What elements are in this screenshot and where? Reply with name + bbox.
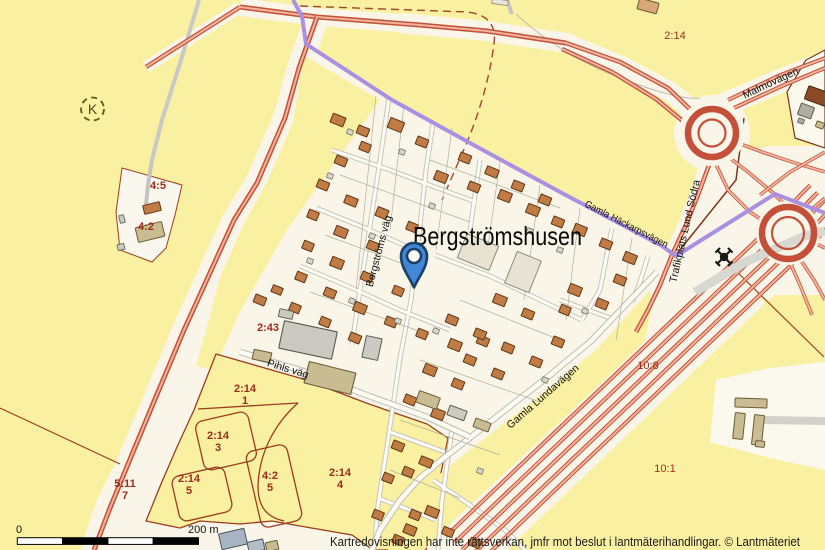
svg-text:5:11: 5:11	[114, 478, 135, 490]
svg-text:2:14: 2:14	[207, 430, 230, 442]
svg-text:Bergströmshusen: Bergströmshusen	[413, 221, 582, 251]
svg-text:5: 5	[267, 482, 273, 494]
svg-text:4: 4	[337, 479, 344, 491]
svg-text:Kartredovisningen har inte rät: Kartredovisningen har inte rättsverkan, …	[330, 534, 800, 549]
svg-text:2:14: 2:14	[234, 383, 257, 395]
svg-text:1: 1	[242, 395, 248, 407]
svg-text:2:14: 2:14	[178, 473, 201, 485]
svg-text:0: 0	[16, 524, 22, 536]
svg-text:2:14: 2:14	[329, 467, 352, 479]
svg-text:10:8: 10:8	[637, 360, 658, 372]
svg-text:7: 7	[122, 490, 128, 502]
svg-text:2:14: 2:14	[664, 30, 685, 42]
svg-text:2:43: 2:43	[257, 322, 279, 334]
svg-text:3: 3	[215, 442, 221, 454]
svg-text:4:2: 4:2	[138, 221, 154, 233]
svg-text:10:1: 10:1	[654, 463, 675, 475]
svg-text:K: K	[88, 101, 98, 117]
svg-text:5: 5	[186, 485, 192, 497]
svg-text:4:2: 4:2	[262, 470, 278, 482]
svg-text:200 m: 200 m	[188, 524, 219, 536]
svg-text:4:5: 4:5	[150, 180, 166, 192]
